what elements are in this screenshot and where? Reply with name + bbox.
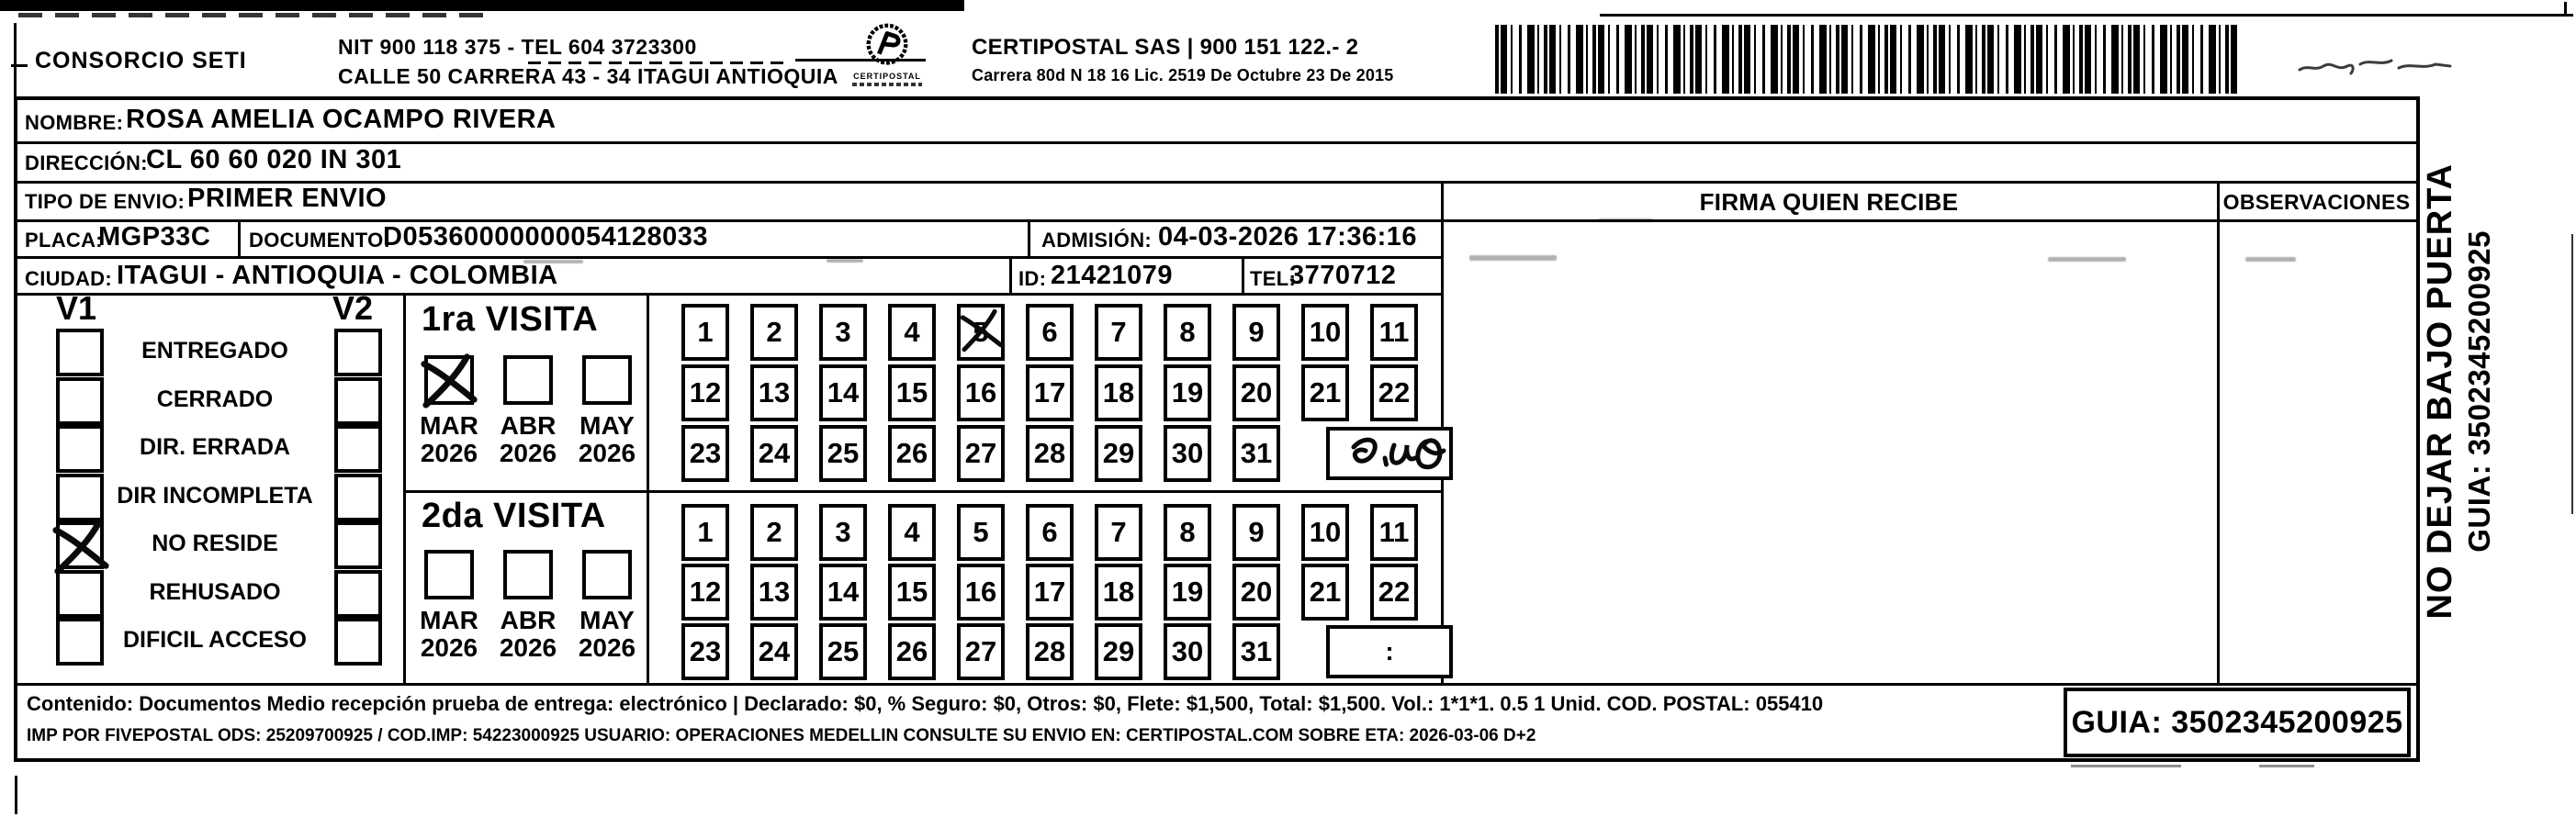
first-visit-day-1: 1 — [681, 304, 729, 361]
address-line: CALLE 50 CARRERA 43 - 34 ITAGUI ANTIOQUI… — [338, 64, 838, 89]
placa-value: MGP33C — [98, 222, 210, 252]
documento-value: D05360000000054128033 — [383, 222, 708, 252]
handwritten-x-mark — [417, 350, 483, 412]
status-label-dir-incompleta: DIR INCOMPLETA — [100, 483, 330, 509]
first-visit-day-10: 10 — [1301, 304, 1349, 361]
v1-checkbox-dir-errada — [56, 425, 104, 473]
first-visit-month-may: MAY2026 — [573, 355, 641, 467]
status-row-no-reside: NO RESIDE — [17, 520, 403, 568]
month-label: ABR — [494, 412, 562, 440]
second-visit-day-21: 21 — [1301, 564, 1349, 621]
month-label: MAR — [415, 607, 483, 634]
main-table: NOMBRE: ROSA AMELIA OCAMPO RIVERA DIRECC… — [14, 96, 2420, 762]
first-visit-day-20: 20 — [1232, 364, 1280, 421]
second-visit-day-4: 4 — [888, 504, 936, 561]
direccion-value: CL 60 60 020 IN 301 — [146, 145, 401, 175]
second-visit-day-18: 18 — [1095, 564, 1142, 621]
id-value: 21421079 — [1051, 261, 1173, 291]
first-visit-checkbox-abr — [503, 355, 553, 405]
first-visit-day-30: 30 — [1164, 425, 1211, 482]
scan-artifact — [2071, 765, 2181, 767]
second-visit-day-28: 28 — [1026, 623, 1074, 680]
first-visit-day-7: 7 — [1095, 304, 1142, 361]
status-row-cerrado: CERRADO — [17, 375, 403, 424]
second-visit-days-row2: 1213141516171819202122 — [647, 564, 1455, 621]
time-note: : — [1385, 637, 1393, 666]
company-name: CONSORCIO SETI — [35, 48, 247, 74]
first-visit-day-23: 23 — [681, 425, 729, 482]
status-row-dificil-acceso: DIFICIL ACCESO — [17, 616, 403, 665]
grid-line — [17, 256, 1441, 259]
grid-line — [403, 293, 406, 683]
first-visit-day-31: 31 — [1232, 425, 1280, 482]
second-visit-day-29: 29 — [1095, 623, 1142, 680]
first-visit-day-15: 15 — [888, 364, 936, 421]
second-visit-day-10: 10 — [1301, 504, 1349, 561]
content-line: Contenido: Documentos Medio recepción pr… — [27, 692, 1823, 716]
logo-subline — [852, 83, 922, 86]
placa-label: PLACA: — [25, 229, 103, 252]
scan-artifact — [2259, 765, 2314, 767]
second-visit-day-15: 15 — [888, 564, 936, 621]
first-visit-day-3: 3 — [819, 304, 867, 361]
first-visit-day-27: 27 — [957, 425, 1005, 482]
first-visit-day-17: 17 — [1026, 364, 1074, 421]
second-visit-day-12: 12 — [681, 564, 729, 621]
certipostal-logo: CERTIPOSTAL — [843, 20, 931, 86]
status-label-dificil-acceso: DIFICIL ACCESO — [100, 627, 330, 654]
second-visit-day-23: 23 — [681, 623, 729, 680]
second-visit-days-row1: 1234567891011 — [647, 504, 1455, 561]
first-visit-day-14: 14 — [819, 364, 867, 421]
first-visit-day-6: 6 — [1026, 304, 1074, 361]
second-visit-day-8: 8 — [1164, 504, 1211, 561]
status-row-dir-incompleta: DIR INCOMPLETA — [17, 472, 403, 520]
v2-checkbox-dir-incompleta — [334, 474, 382, 521]
second-visit-month-mar: MAR2026 — [415, 550, 483, 662]
first-visit-month-mar: MAR2026 — [415, 355, 483, 467]
v1-checkbox-entregado — [56, 329, 104, 376]
first-visit-day-29: 29 — [1095, 425, 1142, 482]
admision-label: ADMISIÓN: — [1041, 229, 1152, 252]
second-visit-day-6: 6 — [1026, 504, 1074, 561]
month-label: MAY — [573, 412, 641, 440]
first-visit-days-row1: 1234567891011 — [647, 304, 1455, 361]
certipostal-line: CERTIPOSTAL SAS | 900 151 122.- 2 — [972, 35, 1358, 61]
first-visit-day-28: 28 — [1026, 425, 1074, 482]
second-visit-day-24: 24 — [750, 623, 798, 680]
side-guia-number: GUIA: 3502345200925 — [2462, 230, 2497, 553]
v1-checkbox-no-reside — [56, 521, 104, 569]
grid-line — [1242, 256, 1244, 293]
second-visit-day-26: 26 — [888, 623, 936, 680]
scan-artifact-dash — [11, 64, 28, 67]
v1-checkbox-rehusado — [56, 570, 104, 618]
v1-header: V1 — [56, 289, 96, 328]
first-visit-days-row3: 232425262728293031 — [647, 425, 1455, 482]
status-label-dir-errada: DIR. ERRADA — [100, 434, 330, 461]
second-visit-day-27: 27 — [957, 623, 1005, 680]
first-visit-day-8: 8 — [1164, 304, 1211, 361]
certipostal-logo-icon — [861, 20, 914, 73]
ciudad-label: CIUDAD: — [25, 267, 112, 291]
nit-line: NIT 900 118 375 - TEL 604 3723300 — [338, 35, 697, 60]
first-visit-day-2: 2 — [750, 304, 798, 361]
logo-caption: CERTIPOSTAL — [843, 72, 931, 81]
first-visit-day-11: 11 — [1370, 304, 1418, 361]
year-label: 2026 — [415, 440, 483, 467]
first-visit-day-26: 26 — [888, 425, 936, 482]
first-visit-day-22: 22 — [1370, 364, 1418, 421]
first-visit-day-25: 25 — [819, 425, 867, 482]
first-visit-month-abr: ABR2026 — [494, 355, 562, 467]
second-visit-checkbox-mar — [424, 550, 474, 599]
second-visit-days-row3: 232425262728293031 : — [647, 623, 1455, 680]
year-label: 2026 — [573, 440, 641, 467]
second-visit-day-2: 2 — [750, 504, 798, 561]
grid-line — [17, 293, 1441, 296]
second-visit-day-19: 19 — [1164, 564, 1211, 621]
status-row-entregado: ENTREGADO — [17, 327, 403, 375]
status-label-cerrado: CERRADO — [100, 386, 330, 413]
observaciones-column-header: OBSERVACIONES — [2217, 190, 2416, 215]
first-visit-day-21: 21 — [1301, 364, 1349, 421]
second-visit-title: 2da VISITA — [422, 497, 606, 536]
first-visit-day-12: 12 — [681, 364, 729, 421]
status-checkbox-list: ENTREGADOCERRADODIR. ERRADADIR INCOMPLET… — [17, 327, 403, 665]
scan-artifact-bottom-tick — [15, 776, 17, 814]
v1-checkbox-dificil-acceso — [56, 618, 104, 666]
first-visit-checkbox-mar — [424, 355, 474, 405]
scan-artifact-topline — [1600, 14, 2573, 17]
firma-column-header: FIRMA QUIEN RECIBE — [1441, 188, 2217, 217]
month-label: MAR — [415, 412, 483, 440]
v2-checkbox-rehusado — [334, 570, 382, 618]
second-visit-day-20: 20 — [1232, 564, 1280, 621]
ciudad-value: ITAGUI - ANTIOQUIA - COLOMBIA — [117, 261, 558, 291]
status-label-rehusado: REHUSADO — [100, 579, 330, 606]
imp-line: IMP POR FIVEPOSTAL ODS: 25209700925 / CO… — [27, 726, 1535, 746]
second-visit-month-abr: ABR2026 — [494, 550, 562, 662]
second-visit-day-1: 1 — [681, 504, 729, 561]
v2-checkbox-dir-errada — [334, 425, 382, 473]
nombre-value: ROSA AMELIA OCAMPO RIVERA — [126, 105, 556, 135]
year-label: 2026 — [494, 634, 562, 662]
handwritten-note-box — [1326, 427, 1453, 480]
v1-checkbox-dir-incompleta — [56, 474, 104, 521]
first-visit-day-19: 19 — [1164, 364, 1211, 421]
grid-line — [238, 219, 241, 256]
scan-artifact-right-edge — [2571, 234, 2573, 514]
v2-checkbox-entregado — [334, 329, 382, 376]
nombre-label: NOMBRE: — [25, 111, 123, 135]
no-dejar-warning: NO DEJAR BAJO PUERTA — [2421, 163, 2460, 619]
shipment-barcode — [1495, 25, 2241, 94]
v1-checkbox-cerrado — [56, 377, 104, 425]
direccion-label: DIRECCIÓN: — [25, 151, 148, 175]
grid-line — [2217, 181, 2220, 683]
month-label: MAY — [573, 607, 641, 634]
documento-label: DOCUMENTO: — [249, 229, 390, 252]
first-visit-day-18: 18 — [1095, 364, 1142, 421]
first-visit-day-5: 5 — [957, 304, 1005, 361]
first-visit-day-16: 16 — [957, 364, 1005, 421]
grid-line — [17, 683, 2416, 686]
id-label: ID: — [1018, 267, 1046, 291]
status-row-dir-errada: DIR. ERRADA — [17, 423, 403, 472]
second-visit-day-5: 5 — [957, 504, 1005, 561]
second-visit-day-9: 9 — [1232, 504, 1280, 561]
handwritten-note — [1332, 432, 1447, 475]
first-visit-day-9: 9 — [1232, 304, 1280, 361]
side-vertical-text: NO DEJAR BAJO PUERTA GUIA: 3502345200925 — [2421, 108, 2497, 674]
second-visit-month-may: MAY2026 — [573, 550, 641, 662]
year-label: 2026 — [573, 634, 641, 662]
tipo-envio-label: TIPO DE ENVIO: — [25, 190, 185, 214]
scan-artifact-tick — [14, 23, 17, 98]
v2-checkbox-no-reside — [334, 521, 382, 569]
v2-checkbox-dificil-acceso — [334, 618, 382, 666]
license-line: Carrera 80d N 18 16 Lic. 2519 De Octubre… — [972, 66, 1393, 85]
second-visit-day-7: 7 — [1095, 504, 1142, 561]
year-label: 2026 — [494, 440, 562, 467]
second-visit-day-17: 17 — [1026, 564, 1074, 621]
second-visit-day-14: 14 — [819, 564, 867, 621]
delivery-slip-scan: CONSORCIO SETI NIT 900 118 375 - TEL 604… — [0, 0, 2576, 828]
status-row-rehusado: REHUSADO — [17, 568, 403, 617]
month-label: ABR — [494, 607, 562, 634]
grid-line — [17, 141, 2416, 144]
first-visit-checkbox-may — [582, 355, 632, 405]
handwritten-scribble — [2294, 46, 2459, 86]
second-visit-months: MAR2026ABR2026MAY2026 — [415, 550, 645, 662]
scan-artifact-dashes — [18, 13, 487, 17]
time-note-box: : — [1326, 625, 1453, 678]
status-label-no-reside: NO RESIDE — [100, 531, 330, 557]
status-label-entregado: ENTREGADO — [100, 338, 330, 364]
first-visit-days-row2: 1213141516171819202122 — [647, 364, 1455, 421]
grid-line — [1009, 256, 1012, 293]
second-visit-day-22: 22 — [1370, 564, 1418, 621]
second-visit-day-31: 31 — [1232, 623, 1280, 680]
v2-header: V2 — [332, 289, 373, 328]
guia-number: GUIA: 3502345200925 — [2071, 705, 2402, 741]
admision-value: 04-03-2026 17:36:16 — [1158, 222, 1417, 252]
first-visit-day-13: 13 — [750, 364, 798, 421]
first-visit-title: 1ra VISITA — [422, 300, 598, 340]
grid-line — [1028, 219, 1030, 256]
v2-checkbox-cerrado — [334, 377, 382, 425]
first-visit-months: MAR2026ABR2026MAY2026 — [415, 355, 645, 467]
second-visit-checkbox-may — [582, 550, 632, 599]
scan-artifact-corner — [2564, 2, 2567, 17]
second-visit-day-16: 16 — [957, 564, 1005, 621]
second-visit-day-30: 30 — [1164, 623, 1211, 680]
year-label: 2026 — [415, 634, 483, 662]
grid-line — [403, 490, 1441, 493]
guia-box: GUIA: 3502345200925 — [2064, 688, 2411, 757]
second-visit-day-3: 3 — [819, 504, 867, 561]
scan-artifact-bar — [0, 0, 964, 11]
first-visit-day-4: 4 — [888, 304, 936, 361]
tipo-envio-value: PRIMER ENVIO — [187, 184, 387, 214]
second-visit-day-13: 13 — [750, 564, 798, 621]
second-visit-checkbox-abr — [503, 550, 553, 599]
second-visit-day-11: 11 — [1370, 504, 1418, 561]
tel-value: 3770712 — [1289, 261, 1396, 291]
first-visit-day-24: 24 — [750, 425, 798, 482]
second-visit-day-25: 25 — [819, 623, 867, 680]
